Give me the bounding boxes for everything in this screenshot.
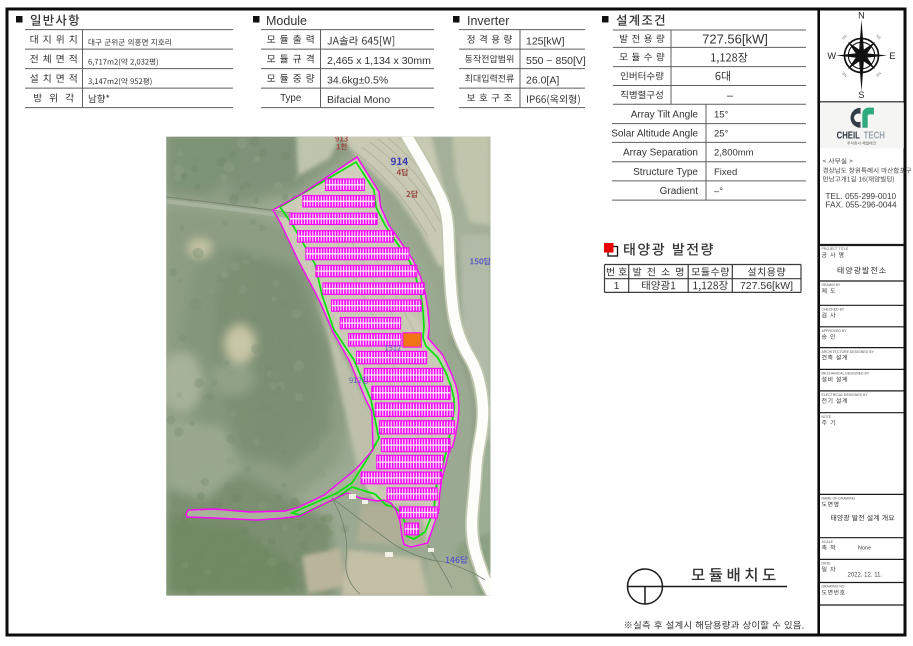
svg-text:DATE: DATE xyxy=(822,562,832,566)
svg-text:W: W xyxy=(827,51,836,61)
svg-text:TECH: TECH xyxy=(864,130,885,141)
svg-text:MECHANICAL DESIGNED BY: MECHANICAL DESIGNED BY xyxy=(822,372,870,376)
svg-text:ELECTRICAL DESIGNED BY: ELECTRICAL DESIGNED BY xyxy=(822,393,869,397)
svg-text:FAX. 055-296-0044: FAX. 055-296-0044 xyxy=(826,201,897,210)
svg-text:DRAWING NO: DRAWING NO xyxy=(822,585,845,589)
svg-text:26.0[A]: 26.0[A] xyxy=(526,75,559,87)
svg-text:CHEIL: CHEIL xyxy=(837,130,861,141)
svg-text:–°: –° xyxy=(714,186,723,197)
svg-text:1: 1 xyxy=(614,280,620,292)
svg-text:Array Separation: Array Separation xyxy=(623,148,698,159)
svg-text:E: E xyxy=(889,51,895,61)
svg-text:Structure Type: Structure Type xyxy=(633,167,698,178)
svg-text:Module: Module xyxy=(266,14,307,28)
svg-text:727.56[kW]: 727.56[kW] xyxy=(702,32,768,47)
svg-text:Bifacial Mono: Bifacial Mono xyxy=(327,94,390,106)
svg-text:Gradient: Gradient xyxy=(660,186,699,197)
svg-text:CHECKED BY: CHECKED BY xyxy=(822,308,845,312)
svg-text:S: S xyxy=(858,90,864,100)
svg-text:2,800mm: 2,800mm xyxy=(714,148,754,159)
svg-text:SCALE: SCALE xyxy=(822,540,834,544)
svg-text:APPROVED BY: APPROVED BY xyxy=(822,329,848,333)
svg-text:25°: 25° xyxy=(714,129,729,140)
svg-text:2,465 x 1,134 x 30mm: 2,465 x 1,134 x 30mm xyxy=(327,55,431,67)
svg-text:NOTE: NOTE xyxy=(822,415,832,419)
svg-text:Inverter: Inverter xyxy=(467,14,509,28)
svg-text:None: None xyxy=(858,546,871,552)
svg-text:DRAWN BY: DRAWN BY xyxy=(822,283,841,287)
svg-text:ARCHITECTURE DESIGNED BY: ARCHITECTURE DESIGNED BY xyxy=(822,350,875,354)
svg-text:NAME OF DRAWING: NAME OF DRAWING xyxy=(822,497,856,501)
svg-text:125[kW]: 125[kW] xyxy=(526,36,565,48)
svg-text:Fixed: Fixed xyxy=(714,167,737,178)
svg-text:PROJECT TITLE: PROJECT TITLE xyxy=(822,247,849,251)
svg-text:550 ~ 850[V]: 550 ~ 850[V] xyxy=(526,55,586,67)
svg-text:N: N xyxy=(858,10,865,20)
svg-text:Solar Altitude Angle: Solar Altitude Angle xyxy=(611,129,698,140)
svg-text:–: – xyxy=(727,90,734,102)
svg-text:727.56[kW]: 727.56[kW] xyxy=(740,280,793,292)
svg-text:Array Tilt Angle: Array Tilt Angle xyxy=(631,109,699,120)
svg-text:Type: Type xyxy=(280,93,302,104)
svg-text:15°: 15° xyxy=(714,109,729,120)
svg-text:34.6kg±0.5%: 34.6kg±0.5% xyxy=(327,75,388,87)
svg-text:2022. 12. 11.: 2022. 12. 11. xyxy=(848,573,883,579)
